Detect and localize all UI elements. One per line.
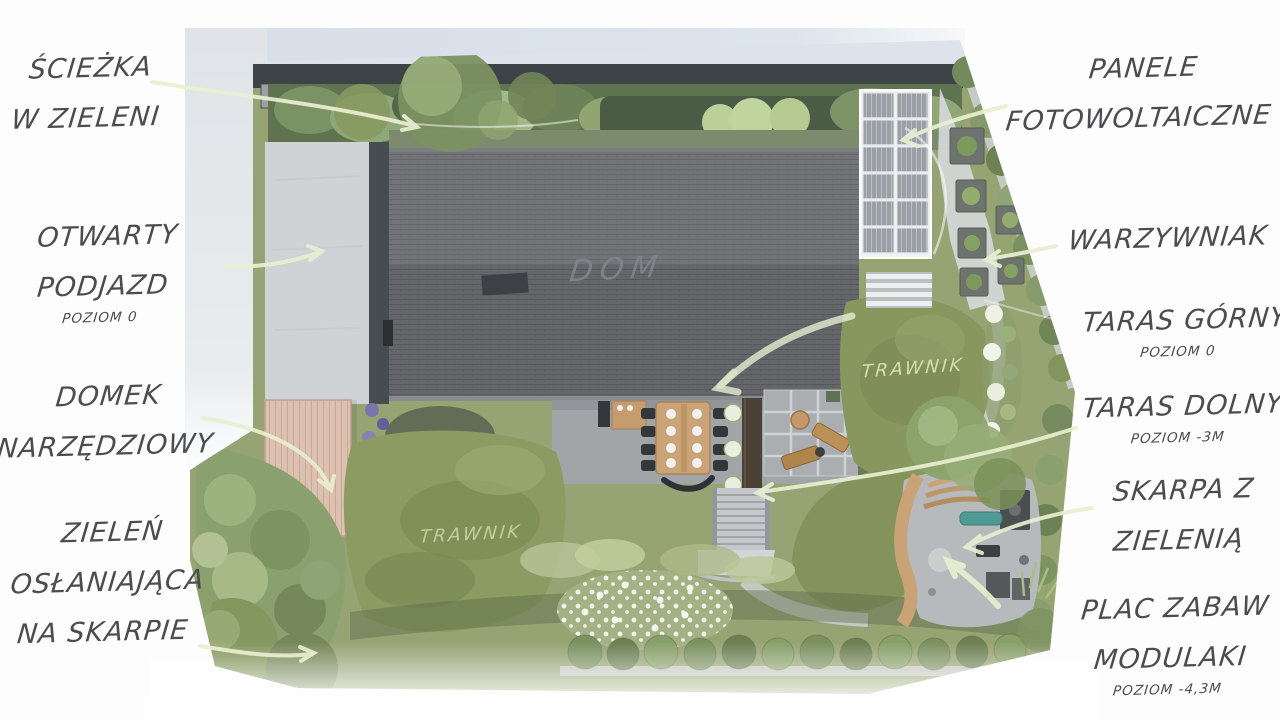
label-domek-narzedziowy: DOMEK NARZĘDZIOWY bbox=[0, 369, 217, 475]
label-line: OTWARTY bbox=[23, 210, 193, 264]
label-line: TARAS DOLNY bbox=[1080, 379, 1280, 434]
label-line: ŚCIEŻKA bbox=[8, 42, 173, 96]
label-line: DOMEK bbox=[0, 369, 217, 425]
solar-panels bbox=[860, 90, 931, 258]
slide bbox=[960, 512, 1002, 525]
label-line: OSŁANIAJĄCA bbox=[0, 555, 218, 611]
label-warzywniak: WARZYWNIAK bbox=[1055, 211, 1280, 267]
label-line: W ZIELENI bbox=[3, 92, 168, 146]
label-line: ZIELEŃ bbox=[2, 505, 222, 561]
label-line: ZIELENIĄ bbox=[1087, 514, 1270, 569]
label-line: PLAC ZABAW bbox=[1068, 581, 1280, 636]
label-plac-zabaw-modulaki: PLAC ZABAW MODULAKI POZIOM -4,3M bbox=[1062, 581, 1280, 702]
label-panele-fotowoltaiczne: PANELE FOTOWOLTAICZNE bbox=[1003, 41, 1279, 148]
label-zielen-oslaniajaca: ZIELEŃ OSŁANIAJĄCA NA SKARPIE bbox=[0, 505, 223, 661]
house-label: DOM bbox=[567, 250, 666, 290]
label-line: SKARPA Z bbox=[1092, 464, 1275, 519]
garden-plan-page: DOM TRAWNIK TRAWNIK ŚCIEŻKA W ZIELENI OT… bbox=[0, 0, 1280, 720]
label-taras-dolny: TARAS DOLNY POZIOM -3M bbox=[1079, 379, 1280, 450]
label-line: WARZYWNIAK bbox=[1055, 211, 1280, 267]
driveway bbox=[265, 142, 389, 404]
label-taras-gorny: TARAS GÓRNY POZIOM 0 bbox=[1079, 293, 1280, 364]
label-line: PANELE bbox=[1008, 41, 1280, 98]
label-skarpa-z-zielenia: SKARPA Z ZIELENIĄ bbox=[1087, 464, 1275, 569]
label-line: TARAS GÓRNY bbox=[1080, 293, 1280, 348]
label-sciezka-w-zieleni: ŚCIEŻKA W ZIELENI bbox=[3, 42, 173, 146]
flower-pots bbox=[724, 404, 743, 495]
stepping-path bbox=[866, 272, 932, 308]
label-line: FOTOWOLTAICZNE bbox=[1003, 91, 1275, 148]
chimney bbox=[481, 272, 528, 295]
outdoor-kitchen bbox=[598, 401, 646, 429]
label-line: NARZĘDZIOWY bbox=[0, 419, 212, 475]
label-otwarty-podjazd: OTWARTY PODJAZD POZIOM 0 bbox=[16, 210, 193, 330]
label-line: NA SKARPIE bbox=[0, 605, 213, 661]
label-line: PODJAZD bbox=[18, 260, 188, 314]
